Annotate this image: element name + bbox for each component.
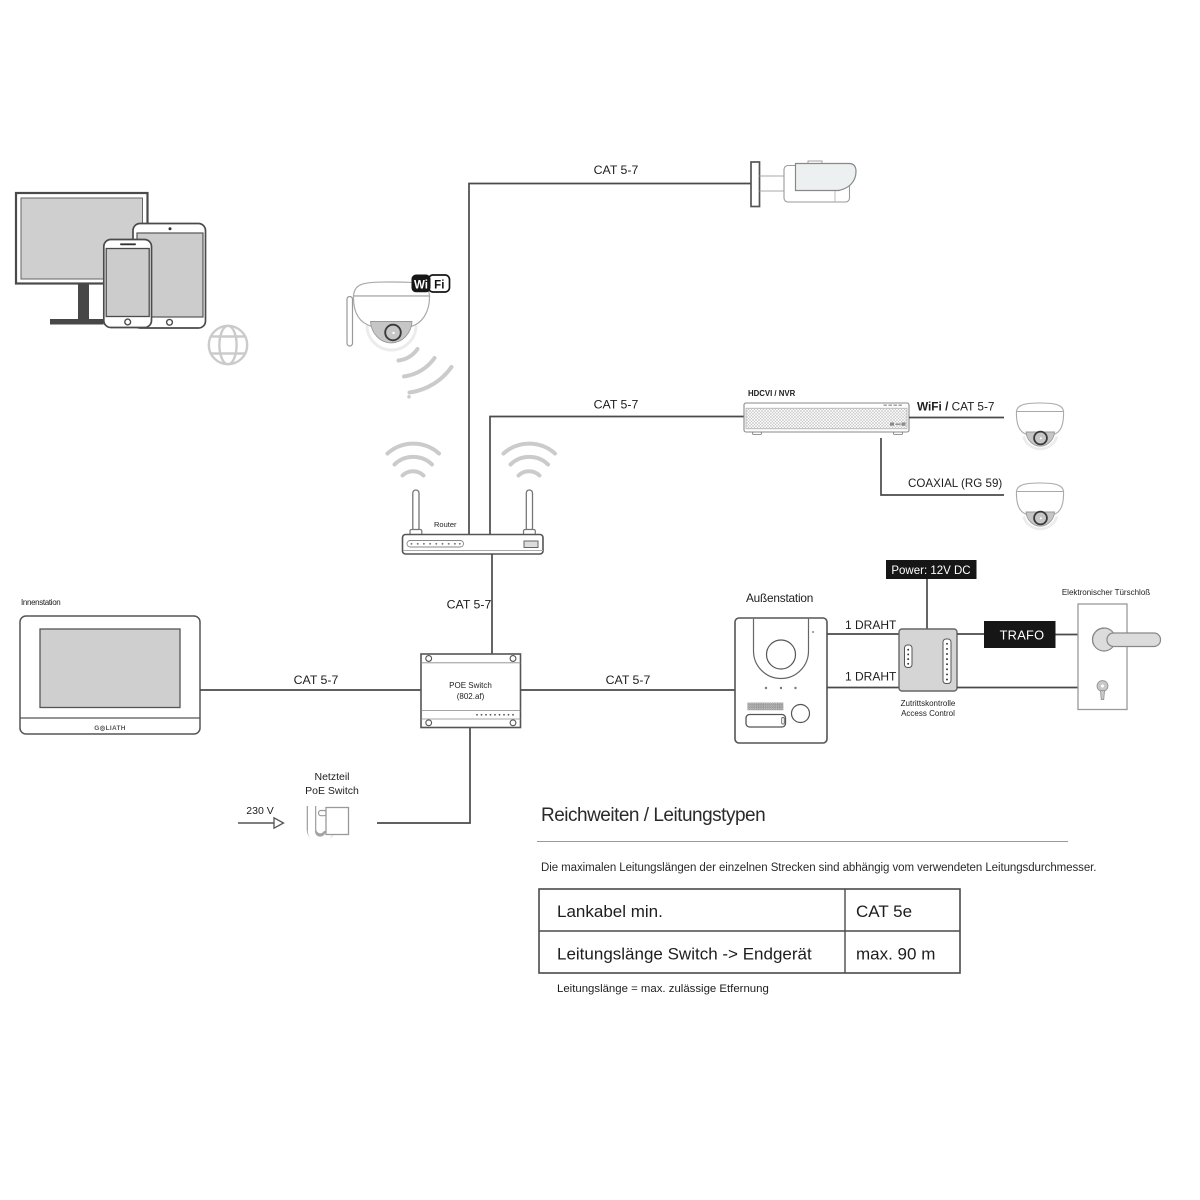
svg-text:Fi: Fi xyxy=(434,279,444,291)
svg-text:HDCVI / NVR: HDCVI / NVR xyxy=(748,389,796,398)
svg-text:Leitungslänge Switch -> Endger: Leitungslänge Switch -> Endgerät xyxy=(557,945,812,964)
svg-text:Reichweiten / Leitungstypen: Reichweiten / Leitungstypen xyxy=(541,805,765,826)
svg-text:CAT 5e: CAT 5e xyxy=(856,902,912,921)
svg-text:CAT 5-7: CAT 5-7 xyxy=(606,673,651,687)
svg-text:Die maximalen Leitungslängen d: Die maximalen Leitungslängen der einzeln… xyxy=(541,862,1096,874)
svg-text:G◎LIATH: G◎LIATH xyxy=(94,725,125,732)
svg-text:COAXIAL (RG 59): COAXIAL (RG 59) xyxy=(908,477,1002,490)
svg-text:Netzteil: Netzteil xyxy=(314,771,349,783)
svg-text:Leitungslänge = max. zulässige: Leitungslänge = max. zulässige Etfernung xyxy=(557,983,769,995)
svg-text:Zutrittskontrolle: Zutrittskontrolle xyxy=(901,699,956,708)
svg-text:Elektronischer Türschloß: Elektronischer Türschloß xyxy=(1062,588,1150,597)
svg-text:CAT 5-7: CAT 5-7 xyxy=(594,163,639,177)
svg-text:Außenstation: Außenstation xyxy=(746,591,813,605)
svg-text:CAT 5-7: CAT 5-7 xyxy=(294,673,339,687)
svg-text:230 V: 230 V xyxy=(246,805,273,817)
svg-text:TRAFO: TRAFO xyxy=(1000,628,1045,643)
svg-text:Wi: Wi xyxy=(414,279,428,291)
svg-text:max. 90 m: max. 90 m xyxy=(856,945,935,964)
svg-text:Router: Router xyxy=(434,520,457,529)
svg-text:Power: 12V DC: Power: 12V DC xyxy=(891,565,970,577)
svg-text:PoE Switch: PoE Switch xyxy=(305,785,359,797)
svg-text:1 DRAHT: 1 DRAHT xyxy=(845,670,897,684)
svg-text:CAT 5-7: CAT 5-7 xyxy=(594,398,639,412)
svg-text:CAT 5-7: CAT 5-7 xyxy=(447,598,492,612)
svg-text:1 DRAHT: 1 DRAHT xyxy=(845,618,897,632)
svg-text:(802.af): (802.af) xyxy=(457,692,485,701)
svg-text:Lankabel min.: Lankabel min. xyxy=(557,902,663,921)
svg-text:Access Control: Access Control xyxy=(901,709,955,718)
svg-text:Innenstation: Innenstation xyxy=(21,598,60,607)
svg-text:WiFi / CAT 5-7: WiFi / CAT 5-7 xyxy=(917,400,994,414)
svg-text:POE Switch: POE Switch xyxy=(449,681,492,690)
